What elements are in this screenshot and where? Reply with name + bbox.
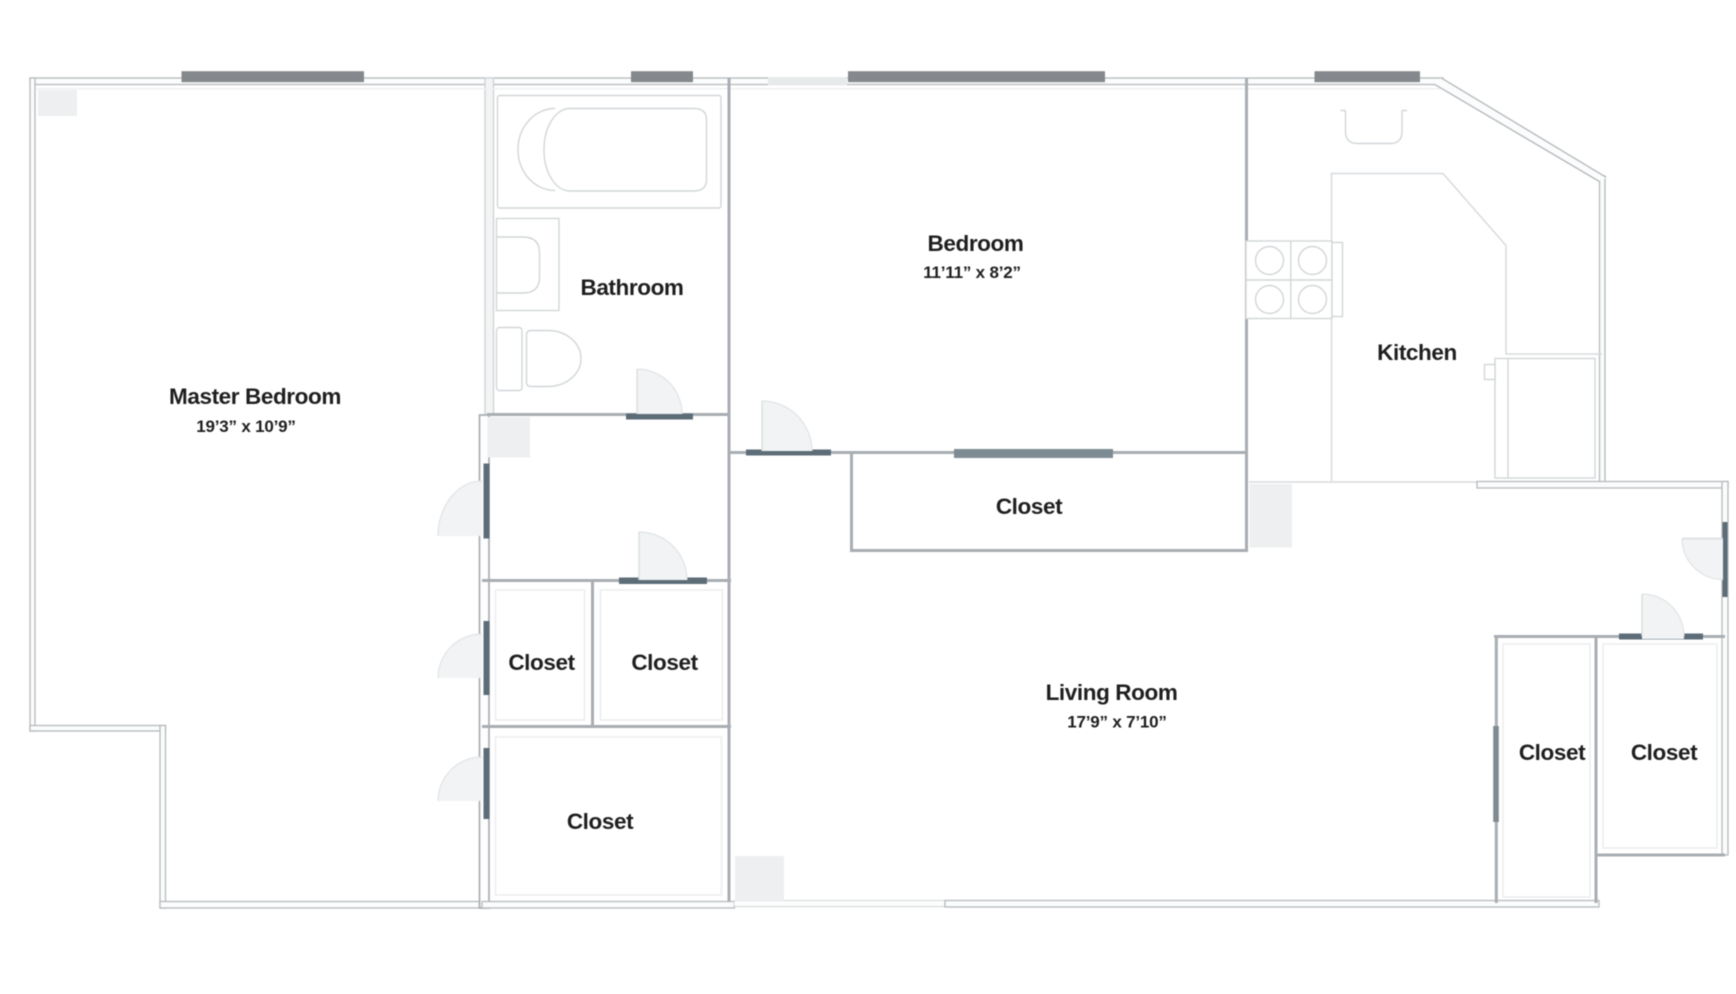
svg-text:Closet: Closet [508,650,575,675]
svg-text:Bedroom: Bedroom [928,231,1024,256]
svg-text:Master Bedroom: Master Bedroom [169,384,341,409]
svg-text:Closet: Closet [631,650,698,675]
svg-text:Closet: Closet [1519,740,1586,765]
svg-text:19’3” x 10’9”: 19’3” x 10’9” [196,417,295,436]
svg-text:Living Room: Living Room [1046,680,1178,705]
svg-text:Closet: Closet [996,494,1063,519]
svg-text:11’11” x 8’2”: 11’11” x 8’2” [923,263,1021,282]
svg-text:Closet: Closet [1631,740,1698,765]
svg-text:17’9” x 7’10”: 17’9” x 7’10” [1067,713,1166,732]
svg-text:Closet: Closet [567,809,634,834]
svg-text:Bathroom: Bathroom [580,275,683,300]
svg-text:Kitchen: Kitchen [1377,340,1457,365]
